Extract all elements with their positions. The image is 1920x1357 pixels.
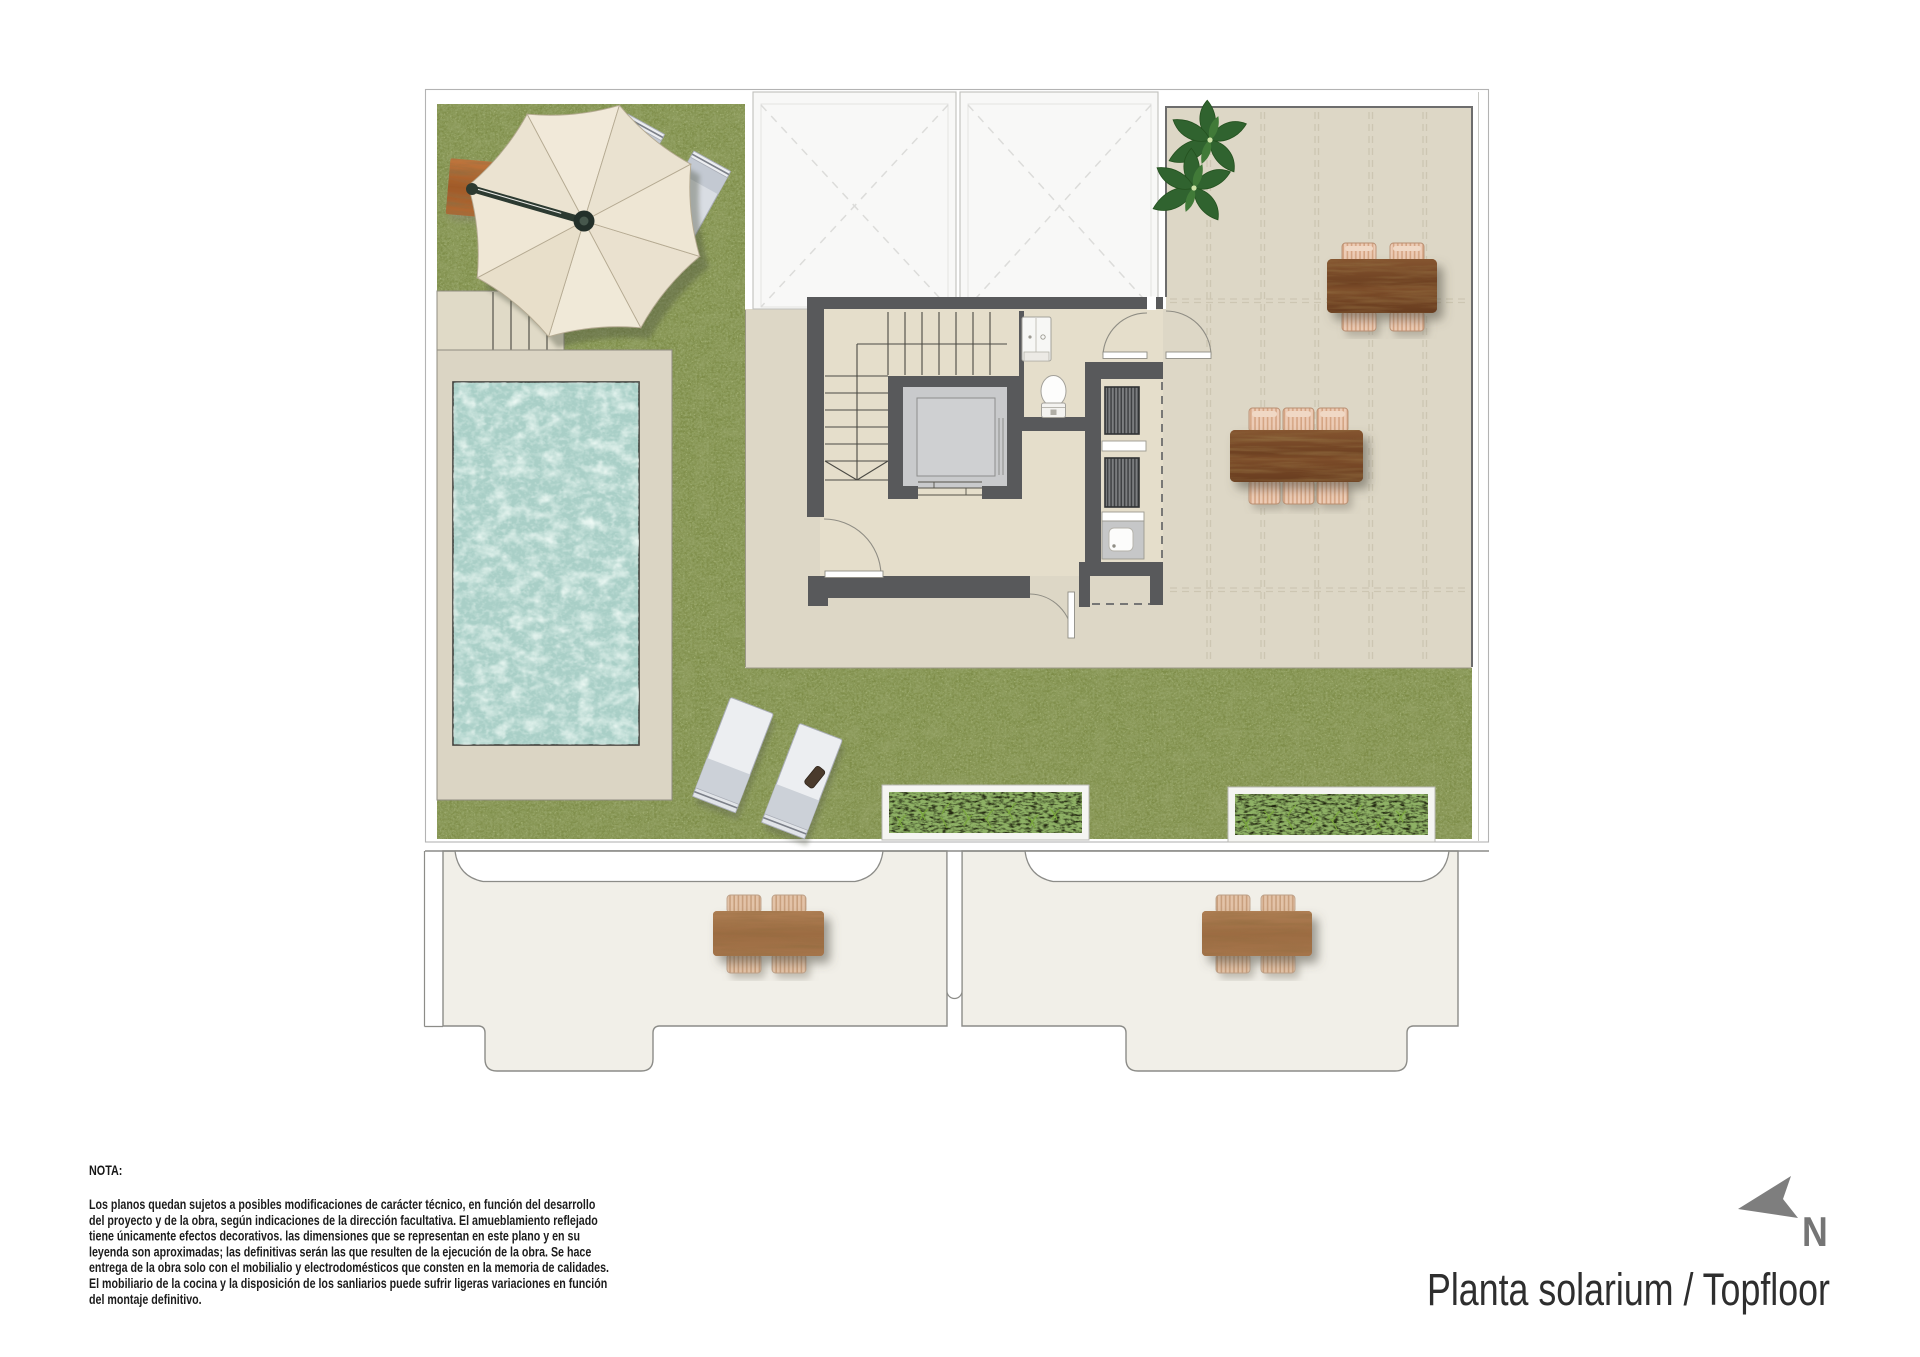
svg-text:leyenda son aproximadas; las d: leyenda son aproximadas; las definitivas…	[89, 1244, 591, 1260]
svg-text:El mobiliario de la cocina y l: El mobiliario de la cocina y la disposic…	[89, 1276, 607, 1292]
svg-text:entrega de la obra solo con el: entrega de la obra solo con el mobiliali…	[89, 1260, 609, 1276]
svg-text:Los planos quedan sujetos a po: Los planos quedan sujetos a posibles mod…	[89, 1197, 595, 1213]
svg-text:Planta solarium / Topfloor: Planta solarium / Topfloor	[1427, 1264, 1830, 1315]
svg-text:N: N	[1802, 1209, 1828, 1255]
svg-text:del montaje definitivo.: del montaje definitivo.	[89, 1292, 202, 1308]
svg-text:tiene únicamente efectos decor: tiene únicamente efectos decorativos. la…	[89, 1228, 580, 1244]
svg-text:del proyecto y de la obra, seg: del proyecto y de la obra, según indicac…	[89, 1213, 598, 1229]
svg-text:NOTA:: NOTA:	[89, 1163, 122, 1178]
